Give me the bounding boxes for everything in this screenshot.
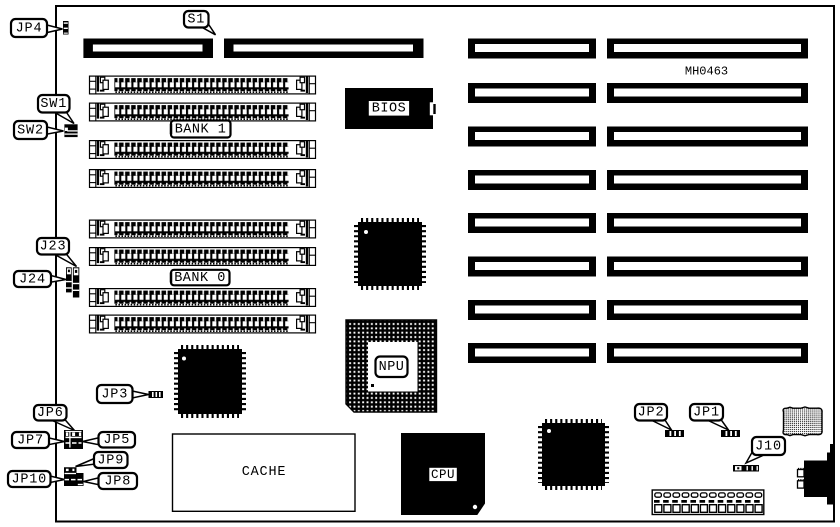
svg-text:JP9: JP9	[97, 453, 124, 468]
svg-text:SW2: SW2	[17, 123, 44, 138]
svg-text:J23: J23	[40, 240, 67, 255]
svg-text:S1: S1	[187, 13, 205, 28]
svg-text:JP8: JP8	[104, 474, 131, 489]
svg-text:J24: J24	[19, 272, 46, 287]
svg-text:BANK 1: BANK 1	[175, 122, 227, 137]
svg-text:CPU: CPU	[431, 468, 455, 482]
svg-text:CACHE: CACHE	[242, 465, 287, 480]
svg-text:JP6: JP6	[37, 406, 64, 421]
svg-text:JP4: JP4	[16, 21, 43, 36]
svg-text:JP7: JP7	[17, 433, 44, 448]
svg-text:JP5: JP5	[103, 433, 130, 448]
svg-text:J10: J10	[755, 439, 782, 454]
svg-text:SW1: SW1	[40, 97, 67, 112]
svg-text:JP2: JP2	[638, 406, 665, 421]
svg-text:JP10: JP10	[11, 472, 47, 487]
svg-text:JP1: JP1	[693, 406, 720, 421]
svg-text:NPU: NPU	[379, 360, 405, 375]
svg-text:MH0463: MH0463	[685, 65, 728, 79]
svg-text:BANK 0: BANK 0	[174, 271, 226, 286]
svg-text:JP3: JP3	[101, 387, 128, 402]
svg-text:BIOS: BIOS	[372, 101, 406, 116]
